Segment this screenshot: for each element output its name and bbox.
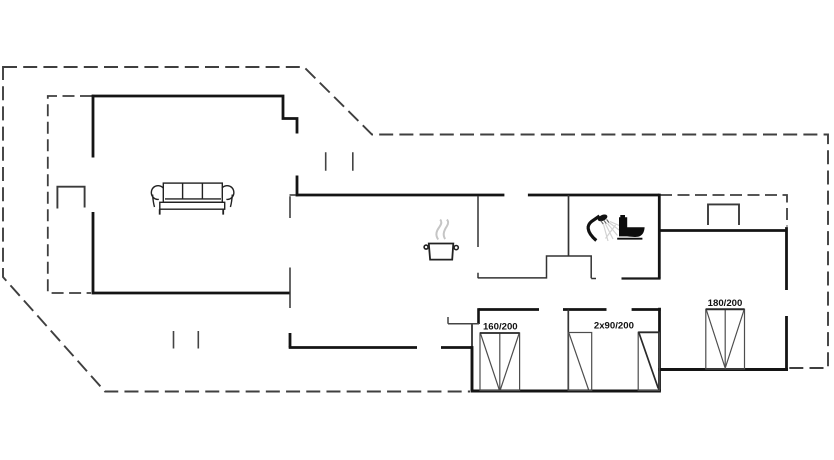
svg-text:160/200: 160/200 [483,321,518,332]
svg-text:2x90/200: 2x90/200 [594,321,634,332]
svg-text:180/200: 180/200 [708,298,743,309]
